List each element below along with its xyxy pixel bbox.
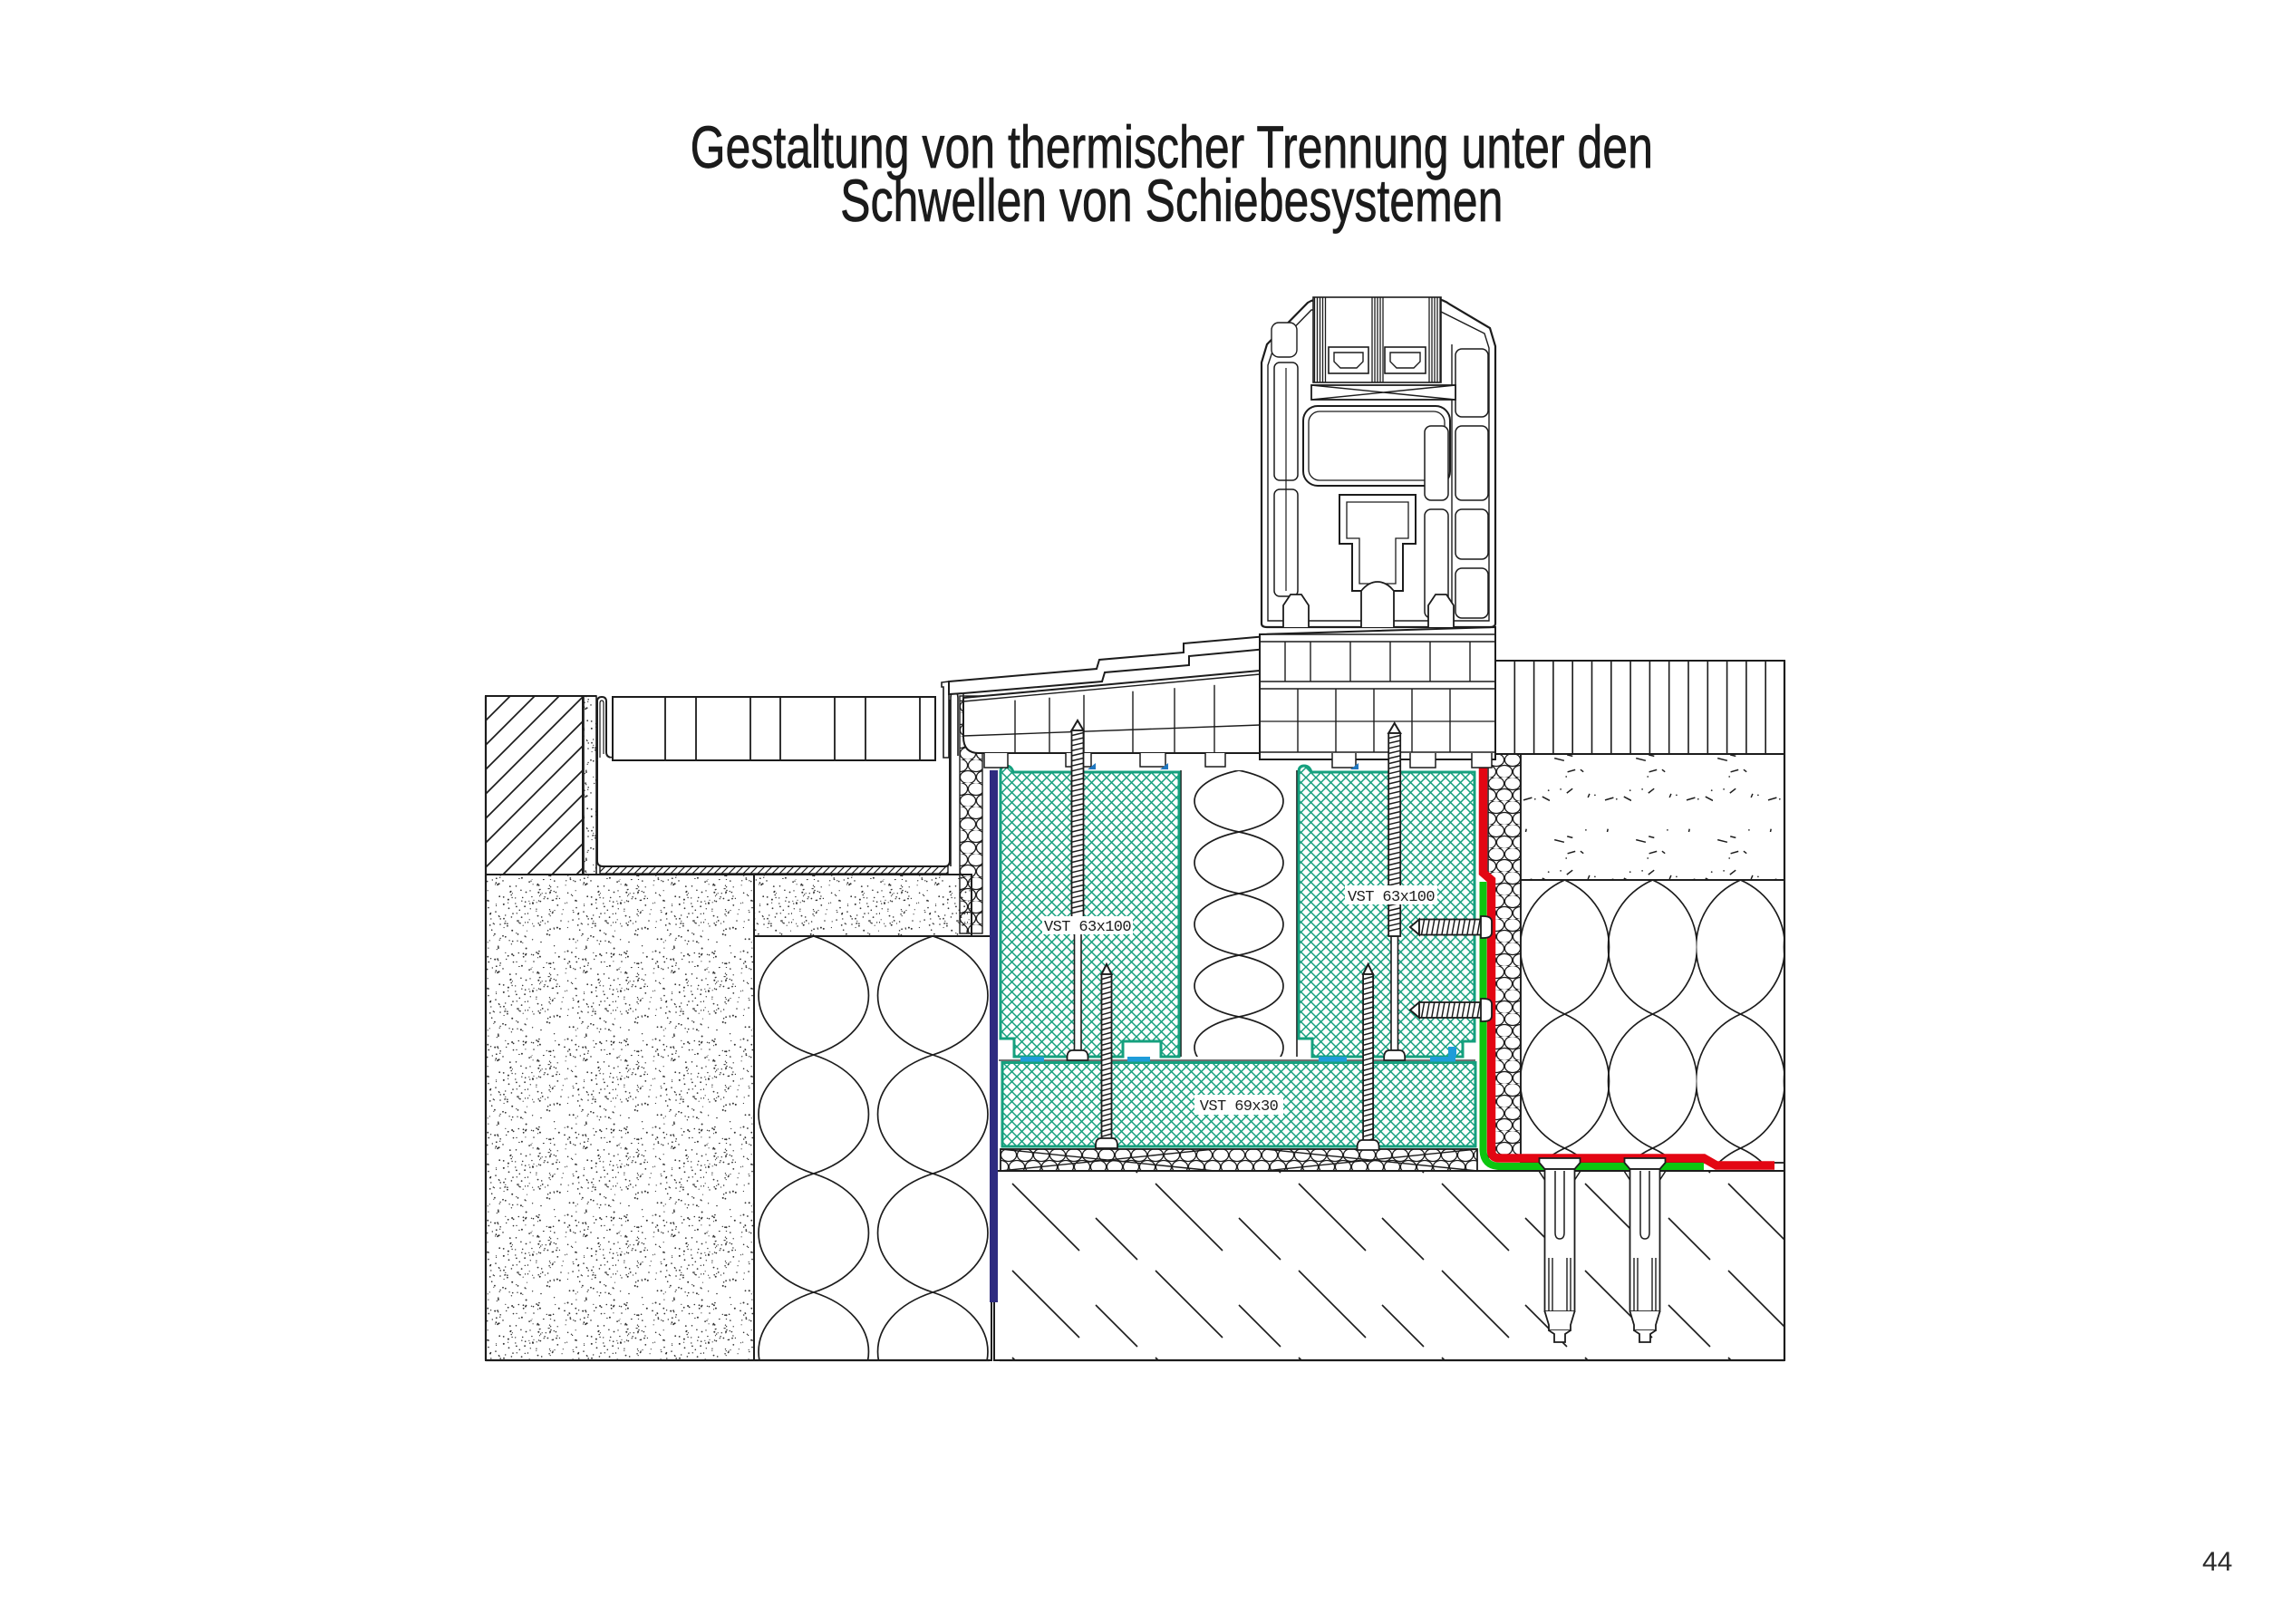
svg-text:VST 63x100: VST 63x100	[1044, 919, 1131, 936]
svg-text:VST 69x30: VST 69x30	[1200, 1098, 1279, 1116]
svg-text:VST 63x100: VST 63x100	[1348, 889, 1435, 906]
